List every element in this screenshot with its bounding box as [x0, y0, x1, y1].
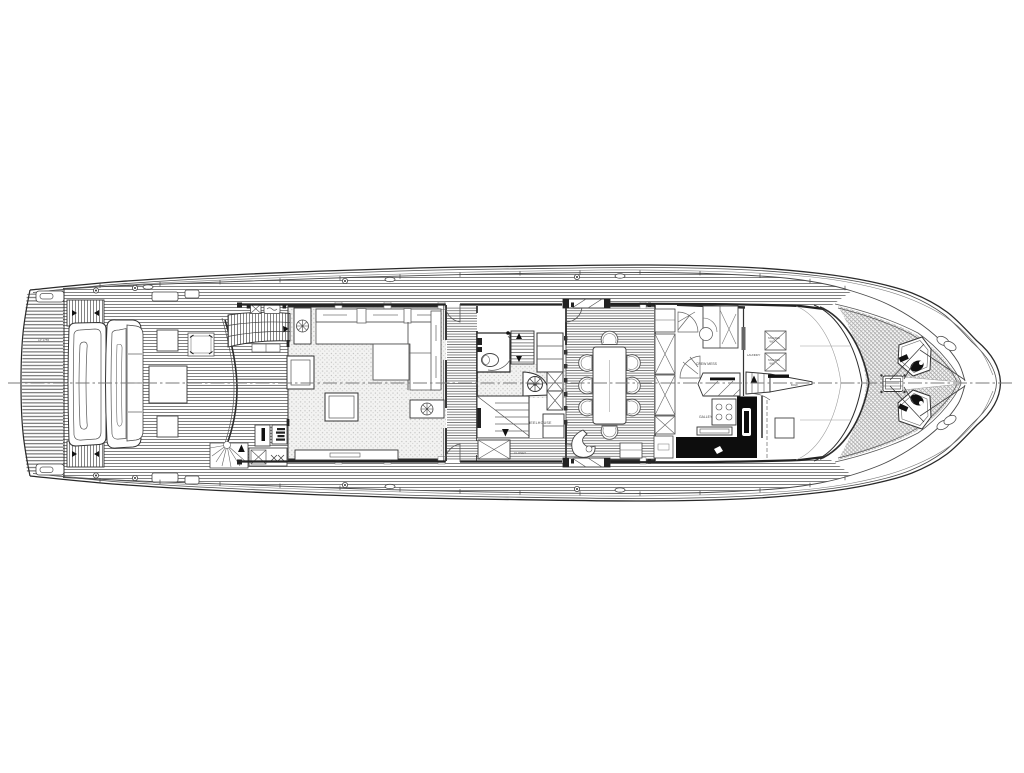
- svg-text:CREW MESS: CREW MESS: [696, 362, 718, 366]
- svg-text:BOW: BOW: [791, 383, 798, 387]
- svg-text:STACKED: STACKED: [768, 336, 780, 340]
- svg-text:LAUNDRY: LAUNDRY: [747, 353, 760, 357]
- svg-text:STACKED: STACKED: [768, 358, 780, 362]
- svg-text:W/D: W/D: [770, 340, 775, 344]
- svg-text:LP 1755: LP 1755: [38, 338, 49, 342]
- svg-text:GALLEY: GALLEY: [699, 415, 713, 419]
- svg-text:CLOSET: CLOSET: [514, 451, 526, 455]
- svg-text:W/D: W/D: [770, 362, 775, 366]
